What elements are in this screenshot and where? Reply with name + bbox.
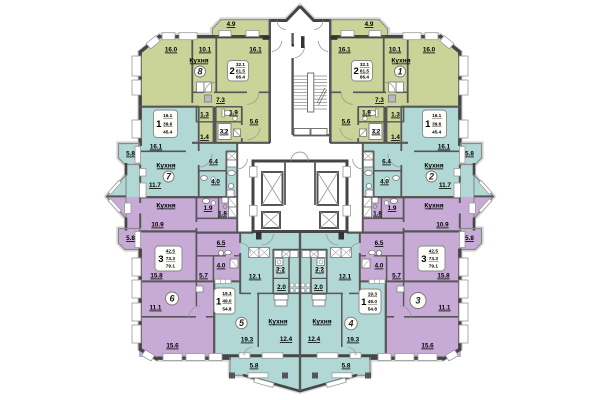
svg-text:15.8: 15.8 — [437, 273, 450, 280]
svg-text:16.1: 16.1 — [432, 113, 442, 118]
svg-text:11.7: 11.7 — [149, 182, 161, 189]
svg-text:10.1: 10.1 — [389, 47, 402, 54]
svg-text:3.2: 3.2 — [220, 129, 229, 136]
svg-text:1: 1 — [425, 119, 431, 130]
svg-text:1.3: 1.3 — [391, 112, 400, 119]
svg-text:2.0: 2.0 — [314, 284, 323, 291]
svg-text:42.5: 42.5 — [429, 249, 439, 254]
svg-text:54.8: 54.8 — [368, 307, 378, 312]
svg-text:3.2: 3.2 — [372, 129, 381, 136]
svg-text:1.9: 1.9 — [204, 205, 213, 212]
svg-text:3: 3 — [158, 254, 163, 265]
svg-text:5.8: 5.8 — [465, 151, 474, 158]
svg-text:4.9: 4.9 — [365, 21, 374, 28]
svg-text:Кухня: Кухня — [424, 163, 443, 170]
svg-text:4.0: 4.0 — [211, 179, 220, 186]
svg-text:5.8: 5.8 — [342, 363, 351, 370]
svg-text:12.4: 12.4 — [308, 336, 321, 343]
svg-text:1: 1 — [361, 297, 367, 308]
svg-text:12.1: 12.1 — [249, 274, 262, 281]
svg-text:6.5: 6.5 — [217, 240, 226, 247]
svg-text:1.8: 1.8 — [373, 211, 382, 218]
svg-text:73.3: 73.3 — [429, 256, 439, 261]
svg-text:1: 1 — [216, 296, 222, 307]
svg-text:16.1: 16.1 — [150, 144, 163, 151]
svg-text:5.6: 5.6 — [250, 119, 259, 126]
svg-text:6.4: 6.4 — [209, 159, 218, 166]
svg-text:10.9: 10.9 — [436, 222, 449, 229]
svg-text:Кухня: Кухня — [268, 319, 287, 326]
svg-text:Кухня: Кухня — [156, 163, 175, 170]
svg-text:3: 3 — [415, 296, 420, 306]
svg-text:1.9: 1.9 — [229, 110, 238, 117]
svg-text:45.4: 45.4 — [163, 130, 173, 135]
svg-text:11.1: 11.1 — [439, 305, 451, 312]
svg-text:39.6: 39.6 — [163, 121, 173, 126]
svg-text:3: 3 — [421, 254, 426, 265]
svg-text:6.5: 6.5 — [375, 240, 384, 247]
svg-text:2.0: 2.0 — [277, 284, 286, 291]
svg-text:45.4: 45.4 — [432, 130, 442, 135]
svg-text:4.9: 4.9 — [227, 21, 236, 28]
svg-text:49.0: 49.0 — [222, 299, 232, 304]
svg-text:Кухня: Кухня — [424, 203, 443, 210]
svg-text:16.1: 16.1 — [249, 47, 262, 54]
svg-text:39.6: 39.6 — [432, 121, 442, 126]
svg-text:32.1: 32.1 — [236, 62, 246, 67]
svg-text:Кухня: Кухня — [189, 58, 208, 65]
svg-text:16.1: 16.1 — [338, 47, 351, 54]
svg-text:4.0: 4.0 — [380, 179, 389, 186]
svg-text:4.0: 4.0 — [375, 263, 384, 270]
svg-text:1.4: 1.4 — [200, 134, 209, 141]
svg-text:16.1: 16.1 — [163, 113, 173, 118]
svg-text:3.2: 3.2 — [315, 267, 324, 274]
svg-text:15.6: 15.6 — [166, 343, 179, 350]
svg-text:5.6: 5.6 — [342, 119, 351, 126]
svg-text:5.8: 5.8 — [250, 363, 259, 370]
svg-text:2: 2 — [428, 172, 434, 182]
svg-text:4.0: 4.0 — [217, 263, 226, 270]
svg-text:1: 1 — [397, 67, 402, 77]
svg-text:19.3: 19.3 — [347, 337, 360, 344]
svg-text:1.4: 1.4 — [391, 134, 400, 141]
svg-text:15.6: 15.6 — [421, 343, 434, 350]
svg-text:19.3: 19.3 — [241, 337, 254, 344]
svg-text:1.8: 1.8 — [218, 211, 227, 218]
svg-text:5.8: 5.8 — [465, 235, 474, 242]
svg-text:73.3: 73.3 — [166, 256, 176, 261]
svg-text:32.1: 32.1 — [360, 62, 370, 67]
svg-text:10.1: 10.1 — [199, 47, 212, 54]
svg-text:19.3: 19.3 — [368, 292, 378, 297]
svg-text:5.8: 5.8 — [126, 151, 135, 158]
svg-text:1.3: 1.3 — [200, 112, 209, 119]
svg-text:16.0: 16.0 — [423, 47, 436, 54]
svg-text:2: 2 — [353, 66, 358, 77]
svg-text:3.2: 3.2 — [276, 267, 285, 274]
svg-text:1.9: 1.9 — [388, 205, 397, 212]
svg-text:66.4: 66.4 — [360, 75, 370, 80]
svg-text:Кухня: Кухня — [312, 319, 331, 326]
svg-text:6.4: 6.4 — [382, 159, 391, 166]
svg-text:61.5: 61.5 — [236, 68, 246, 73]
svg-text:12.1: 12.1 — [339, 274, 352, 281]
svg-text:15.8: 15.8 — [150, 273, 163, 280]
svg-text:1.9: 1.9 — [362, 110, 371, 117]
svg-text:66.4: 66.4 — [236, 75, 246, 80]
svg-text:8: 8 — [197, 67, 202, 77]
svg-text:5.7: 5.7 — [199, 273, 208, 280]
svg-text:16.1: 16.1 — [438, 144, 451, 151]
svg-text:49.0: 49.0 — [368, 299, 378, 304]
svg-text:79.1: 79.1 — [166, 264, 176, 269]
svg-text:5.8: 5.8 — [126, 235, 135, 242]
svg-text:2: 2 — [229, 66, 234, 77]
svg-text:61.5: 61.5 — [360, 68, 370, 73]
svg-text:79.1: 79.1 — [429, 264, 439, 269]
svg-text:1: 1 — [156, 119, 162, 130]
svg-text:54.8: 54.8 — [222, 306, 232, 311]
svg-text:12.4: 12.4 — [280, 336, 293, 343]
svg-text:4: 4 — [347, 319, 353, 329]
svg-text:7.3: 7.3 — [375, 97, 384, 104]
svg-text:42.5: 42.5 — [166, 249, 176, 254]
svg-text:7.3: 7.3 — [216, 97, 225, 104]
svg-text:16.0: 16.0 — [165, 47, 178, 54]
svg-text:10.9: 10.9 — [151, 222, 164, 229]
svg-text:Кухня: Кухня — [156, 203, 175, 210]
svg-text:Кухня: Кухня — [391, 58, 410, 65]
svg-text:11.7: 11.7 — [439, 182, 451, 189]
svg-text:19.3: 19.3 — [222, 291, 232, 296]
svg-text:5.7: 5.7 — [392, 273, 401, 280]
svg-text:11.1: 11.1 — [150, 305, 162, 312]
